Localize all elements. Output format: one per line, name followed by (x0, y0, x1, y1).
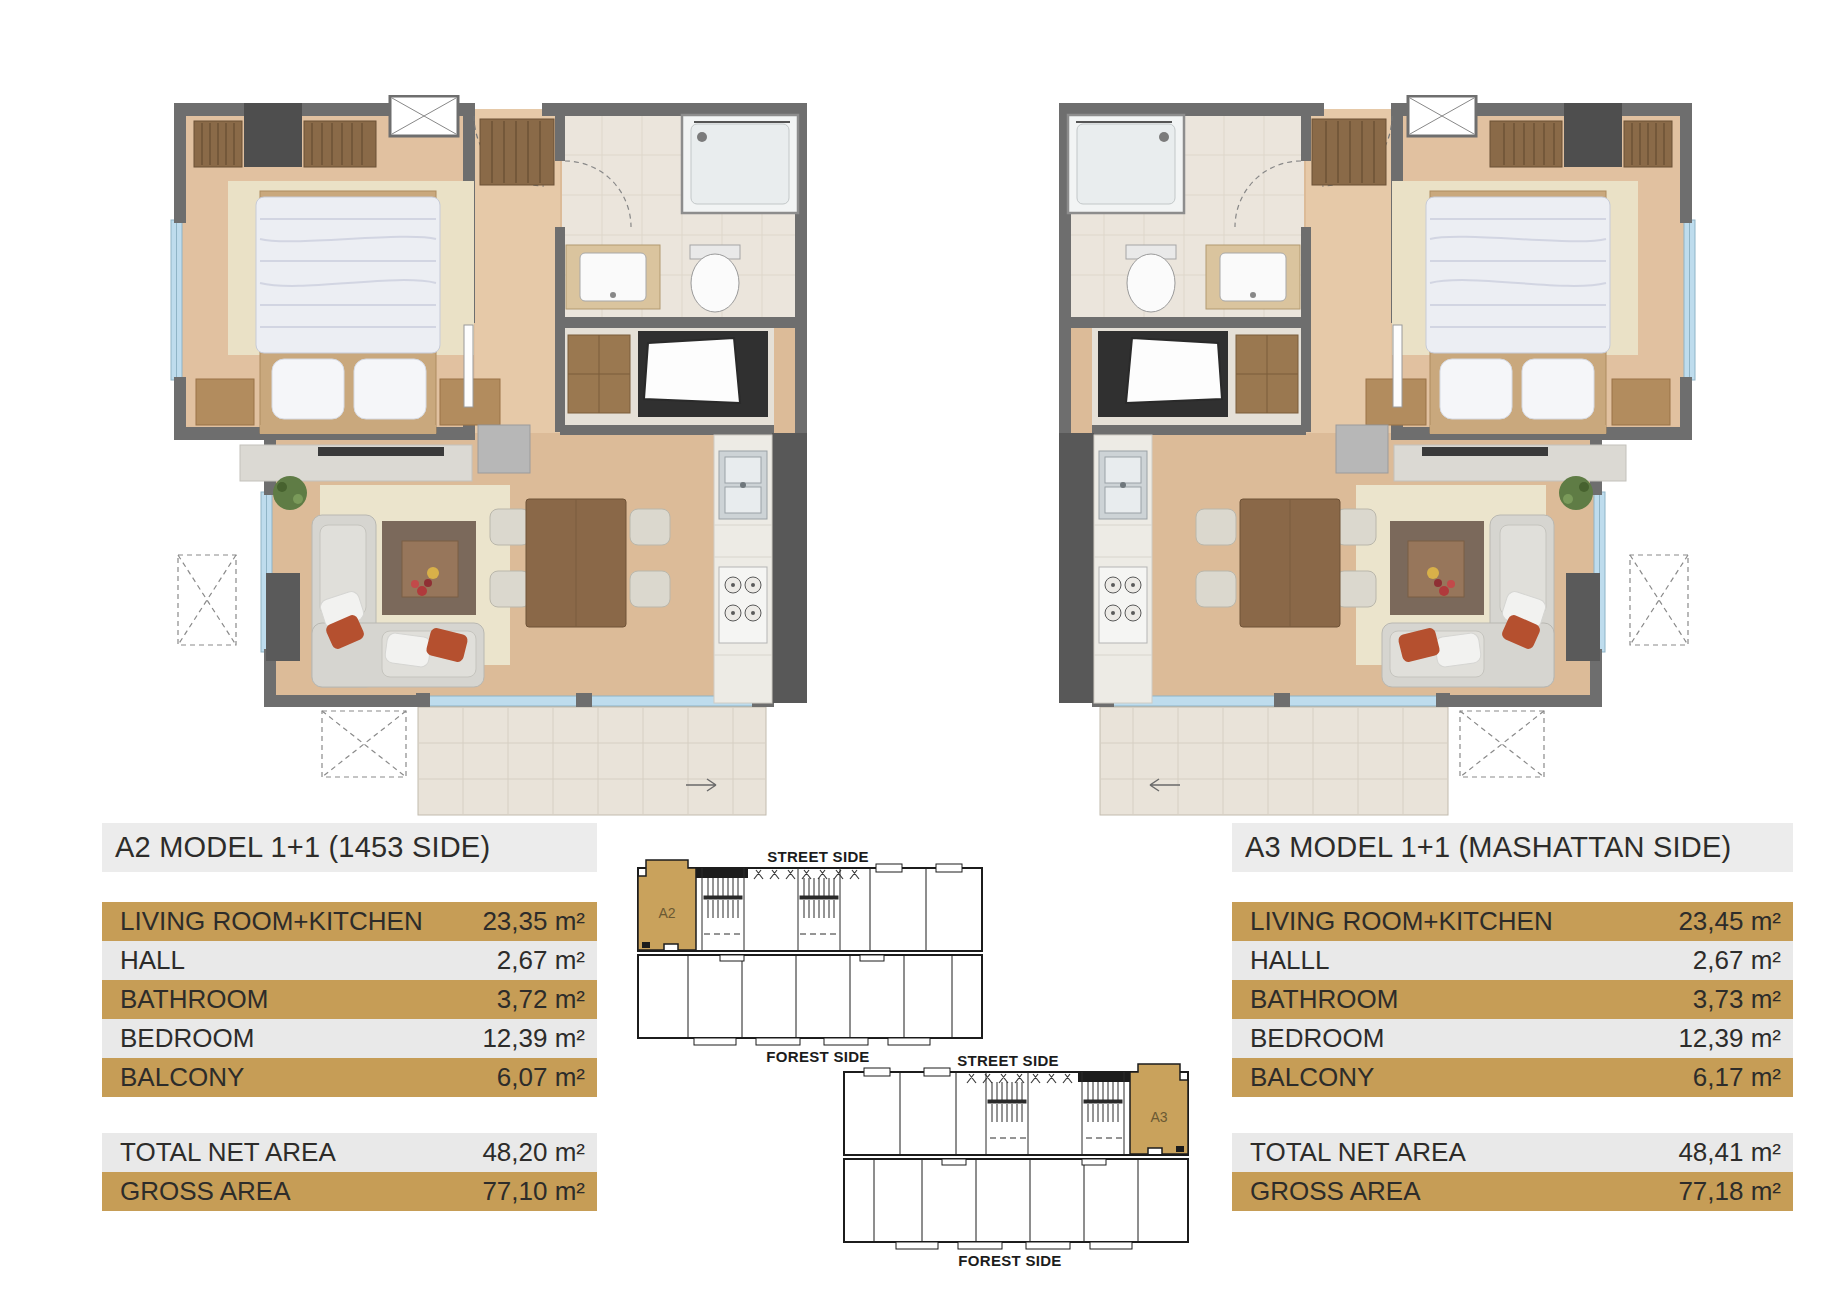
room-label: LIVING ROOM+KITCHEN (1250, 906, 1553, 937)
area-row: BATHROOM 3,73 m² (1232, 980, 1793, 1019)
room-label: BEDROOM (120, 1023, 254, 1054)
area-row: LIVING ROOM+KITCHEN 23,35 m² (102, 902, 597, 941)
unit-a2-area-table: LIVING ROOM+KITCHEN 23,35 m² HALL 2,67 m… (102, 902, 597, 1097)
total-area: 48,20 m² (482, 1137, 585, 1168)
total-row: GROSS AREA 77,18 m² (1232, 1172, 1793, 1211)
area-row: HALL 2,67 m² (102, 941, 597, 980)
room-area: 6,17 m² (1693, 1062, 1781, 1093)
unit-marker-a3: A3 (1150, 1109, 1167, 1125)
area-row: BEDROOM 12,39 m² (1232, 1019, 1793, 1058)
forest-side-label: FOREST SIDE (958, 1252, 1061, 1269)
total-area: 77,10 m² (482, 1176, 585, 1207)
total-label: TOTAL NET AREA (120, 1137, 336, 1168)
total-row: TOTAL NET AREA 48,41 m² (1232, 1133, 1793, 1172)
area-row: BALCONY 6,17 m² (1232, 1058, 1793, 1097)
total-row: TOTAL NET AREA 48,20 m² (102, 1133, 597, 1172)
unit-a3-totals: TOTAL NET AREA 48,41 m² GROSS AREA 77,18… (1232, 1133, 1793, 1211)
room-label: BATHROOM (120, 984, 268, 1015)
total-row: GROSS AREA 77,10 m² (102, 1172, 597, 1211)
area-row: HALLL 2,67 m² (1232, 941, 1793, 980)
unit-a2-title: A2 MODEL 1+1 (1453 SIDE) (102, 823, 597, 872)
room-area: 23,35 m² (482, 906, 585, 937)
total-label: TOTAL NET AREA (1250, 1137, 1466, 1168)
total-area: 77,18 m² (1678, 1176, 1781, 1207)
room-area: 23,45 m² (1678, 906, 1781, 937)
room-area: 12,39 m² (482, 1023, 585, 1054)
room-area: 12,39 m² (1678, 1023, 1781, 1054)
area-row: BATHROOM 3,72 m² (102, 980, 597, 1019)
floor-plan-a3 (1056, 95, 1696, 825)
room-area: 3,72 m² (497, 984, 585, 1015)
total-area: 48,41 m² (1678, 1137, 1781, 1168)
unit-a3-area-table: LIVING ROOM+KITCHEN 23,45 m² HALLL 2,67 … (1232, 902, 1793, 1097)
room-label: HALLL (1250, 945, 1330, 976)
room-label: BALCONY (120, 1062, 244, 1093)
room-area: 6,07 m² (497, 1062, 585, 1093)
floor-plan-a2 (170, 95, 810, 825)
street-side-label: STREET SIDE (767, 848, 869, 865)
unit-marker-a2: A2 (658, 905, 675, 921)
room-label: LIVING ROOM+KITCHEN (120, 906, 423, 937)
unit-a3-title: A3 MODEL 1+1 (MASHATTAN SIDE) (1232, 823, 1793, 872)
total-label: GROSS AREA (120, 1176, 291, 1207)
key-plan-a3: STREET SIDE FOREST SIDE A3 (836, 1050, 1196, 1272)
floorplan-brochure-page: A2 MODEL 1+1 (1453 SIDE) LIVING ROOM+KIT… (0, 0, 1839, 1300)
key-plan-a2: STREET SIDE FOREST SIDE A2 (630, 846, 990, 1068)
total-label: GROSS AREA (1250, 1176, 1421, 1207)
street-side-label: STREET SIDE (957, 1052, 1059, 1069)
room-label: BEDROOM (1250, 1023, 1384, 1054)
room-label: BALCONY (1250, 1062, 1374, 1093)
room-area: 3,73 m² (1693, 984, 1781, 1015)
area-row: BEDROOM 12,39 m² (102, 1019, 597, 1058)
room-area: 2,67 m² (497, 945, 585, 976)
area-row: BALCONY 6,07 m² (102, 1058, 597, 1097)
unit-a2-totals: TOTAL NET AREA 48,20 m² GROSS AREA 77,10… (102, 1133, 597, 1211)
room-label: HALL (120, 945, 185, 976)
room-label: BATHROOM (1250, 984, 1398, 1015)
area-row: LIVING ROOM+KITCHEN 23,45 m² (1232, 902, 1793, 941)
room-area: 2,67 m² (1693, 945, 1781, 976)
